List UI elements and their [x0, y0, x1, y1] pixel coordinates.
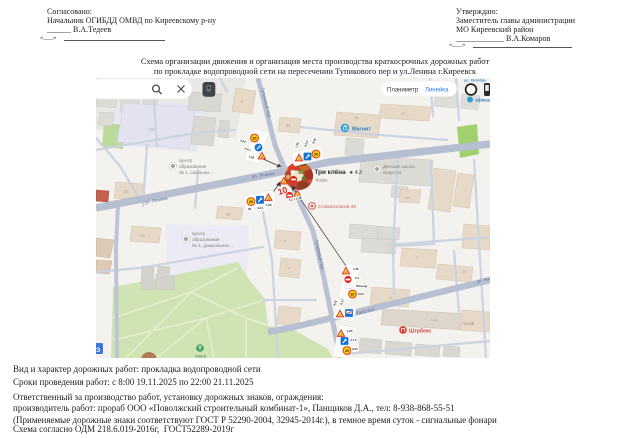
svg-text:4.1.5: 4.1.5 [350, 338, 357, 342]
svg-text:12а: 12а [430, 317, 437, 322]
svg-text:Кафе: Кафе [316, 178, 328, 184]
svg-text:14: 14 [140, 233, 145, 238]
svg-text:Магнит: Магнит [352, 127, 371, 133]
svg-text:16а: 16а [404, 196, 411, 200]
svg-text:Актив: Актив [462, 321, 475, 326]
svg-text:искусств: искусств [383, 170, 402, 175]
svg-text:Афиша: Афиша [475, 98, 490, 103]
svg-text:Объезд: Объезд [356, 284, 367, 288]
svg-text:3.1: 3.1 [355, 276, 359, 280]
svg-text:28: 28 [226, 212, 231, 217]
svg-text:34: 34 [124, 189, 129, 194]
svg-text:Э: Э [96, 348, 101, 354]
svg-text:№ 1, дошкольнос...: № 1, дошкольнос... [192, 243, 233, 248]
svg-text:22: 22 [401, 111, 406, 116]
svg-text:Штрбекс: Штрбекс [409, 328, 432, 335]
svg-text:образования: образования [179, 164, 207, 169]
svg-text:Стоматология 32: Стоматология 32 [318, 204, 356, 210]
svg-text:22: 22 [149, 127, 155, 132]
svg-text:ул. Октябрь: ул. Октябрь [464, 79, 487, 83]
svg-text:26: 26 [286, 123, 291, 128]
svg-text:Линейка: Линейка [425, 87, 449, 94]
svg-text:1.25: 1.25 [347, 329, 353, 333]
svg-text:1.25: 1.25 [353, 267, 359, 271]
svg-text:сквер: сквер [195, 354, 207, 359]
svg-text:15: 15 [462, 269, 467, 274]
svg-text:1.25: 1.25 [266, 203, 272, 207]
svg-text:16: 16 [354, 115, 359, 120]
svg-text:3.24: 3.24 [358, 292, 364, 296]
svg-text:Центр: Центр [179, 158, 193, 163]
svg-text:образования: образования [192, 237, 220, 242]
svg-text:Планиметр: Планиметр [387, 88, 419, 94]
svg-text:Детская школа: Детская школа [383, 164, 415, 169]
svg-text:№ 1, школьни...: № 1, школьни... [179, 170, 213, 175]
svg-text:3.24: 3.24 [352, 347, 358, 351]
svg-text:4.2.1: 4.2.1 [257, 206, 264, 210]
svg-text:Центр: Центр [192, 231, 206, 236]
svg-text:★ 4,3: ★ 4,3 [349, 170, 362, 176]
svg-text:20: 20 [248, 207, 252, 211]
svg-text:Три клёна: Три клёна [315, 169, 347, 176]
